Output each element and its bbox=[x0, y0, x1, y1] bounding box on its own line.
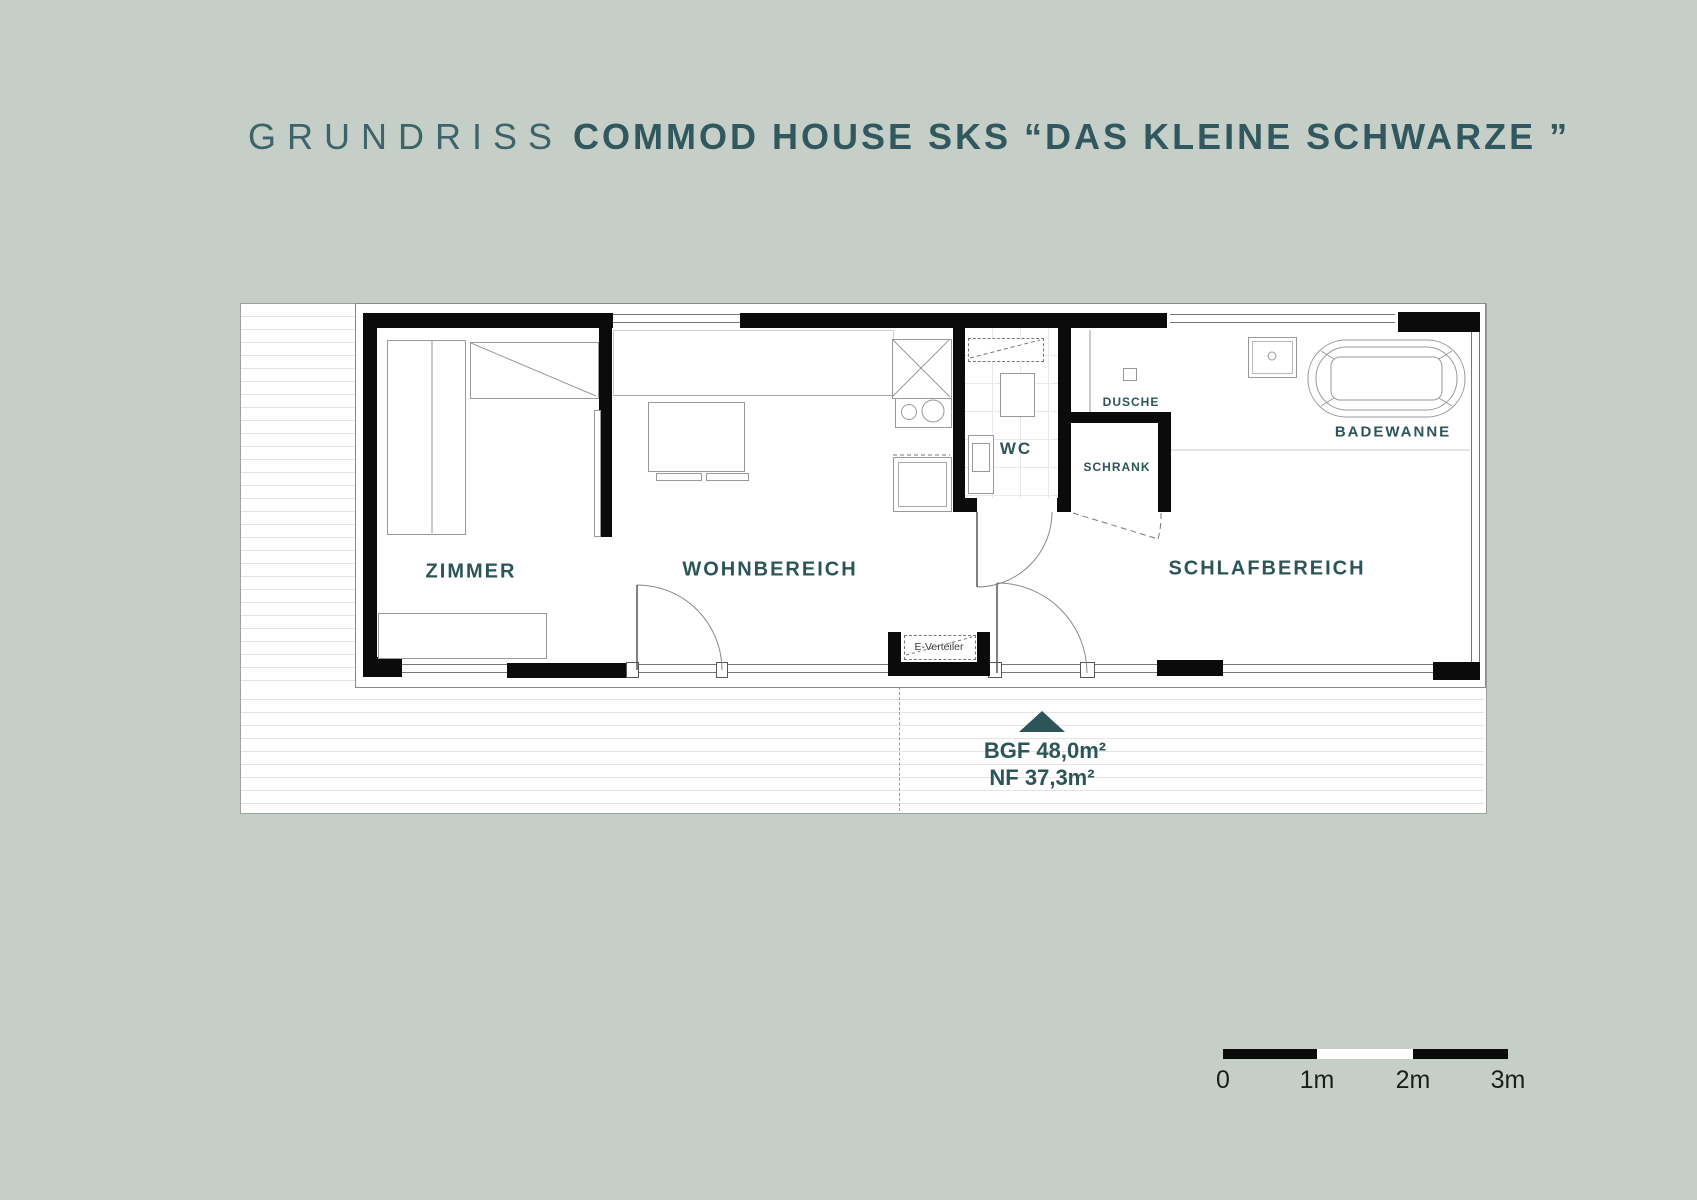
shower-drain bbox=[1123, 368, 1137, 381]
cooktop bbox=[892, 339, 952, 399]
room-label-zimmer: ZIMMER bbox=[426, 561, 517, 584]
wall-top-left bbox=[363, 313, 613, 328]
wall-bottom-right-corner bbox=[1433, 662, 1480, 680]
wall-top-middle bbox=[740, 313, 1167, 328]
oven-inner bbox=[898, 462, 947, 507]
sliding-door-leaf bbox=[594, 410, 601, 537]
wall-wc-bottom-right bbox=[1057, 498, 1071, 512]
wc-shelf bbox=[1000, 373, 1035, 417]
door-jamb bbox=[716, 662, 728, 678]
e-verteiler-label: E-Verteiler bbox=[914, 641, 963, 653]
title-prefix: GRUNDRISS bbox=[248, 116, 563, 157]
room-label-wohnbereich: WOHNBEREICH bbox=[682, 559, 857, 582]
bench bbox=[656, 473, 702, 481]
scale-bar-segment-2 bbox=[1317, 1049, 1413, 1059]
door-jamb bbox=[988, 662, 1002, 678]
scale-bar-segment-3 bbox=[1413, 1049, 1508, 1059]
wall-wc-bottom-left bbox=[953, 498, 977, 512]
scale-bar-segment-1 bbox=[1223, 1049, 1317, 1059]
window bbox=[402, 664, 890, 673]
overhead-cabinet bbox=[968, 338, 1044, 362]
wall-top-right-corner bbox=[1398, 312, 1480, 332]
dining-table bbox=[648, 402, 745, 472]
door-jamb bbox=[1080, 662, 1095, 678]
wall-bottom-left-corner bbox=[377, 657, 402, 677]
room-label-schrank: SCHRANK bbox=[1084, 460, 1151, 474]
room-label-wc: WC bbox=[1000, 439, 1032, 459]
sideboard bbox=[378, 613, 547, 659]
wall-left bbox=[363, 313, 377, 677]
wall-bottom-b bbox=[1157, 660, 1223, 676]
door-jamb bbox=[626, 662, 639, 678]
room-label-dusche: DUSCHE bbox=[1103, 395, 1160, 409]
room-label-schlafbereich: SCHLAFBEREICH bbox=[1168, 558, 1365, 581]
floor-plan-page: GRUNDRISSCOMMOD HOUSE SKS “DAS KLEINE SC… bbox=[0, 0, 1697, 1200]
kitchen-counter bbox=[613, 330, 894, 396]
wall-schrank-right bbox=[1158, 412, 1171, 512]
wall-bottom-a bbox=[507, 663, 632, 678]
toilet-bowl bbox=[972, 443, 990, 472]
kitchen-sink-unit bbox=[895, 398, 952, 428]
bed bbox=[387, 340, 466, 535]
wall-partition-kitchen-wc bbox=[953, 328, 965, 512]
page-title: GRUNDRISSCOMMOD HOUSE SKS “DAS KLEINE SC… bbox=[248, 116, 1570, 158]
bathroom-sink-basin bbox=[1252, 341, 1293, 374]
area-bgf: BGF 48,0m² bbox=[984, 738, 1106, 764]
wall-partition-wc-bath bbox=[1058, 328, 1071, 512]
window bbox=[1170, 314, 1395, 323]
window bbox=[610, 314, 740, 323]
scale-label-0: 0 bbox=[1216, 1066, 1230, 1095]
fixture-label-badewanne: BADEWANNE bbox=[1335, 424, 1451, 441]
scale-label-2m: 2m bbox=[1396, 1066, 1431, 1095]
window-glazing-right bbox=[1471, 332, 1480, 662]
section-line bbox=[899, 687, 900, 811]
area-nf: NF 37,3m² bbox=[989, 765, 1094, 791]
wardrobe bbox=[470, 342, 599, 399]
wall-dusche-schrank bbox=[1071, 412, 1168, 423]
title-main: COMMOD HOUSE SKS “DAS KLEINE SCHWARZE ” bbox=[573, 116, 1570, 157]
scale-label-3m: 3m bbox=[1491, 1066, 1526, 1095]
scale-label-1m: 1m bbox=[1300, 1066, 1335, 1095]
terrace-deck-bottom bbox=[241, 687, 1484, 811]
bench bbox=[706, 473, 749, 481]
